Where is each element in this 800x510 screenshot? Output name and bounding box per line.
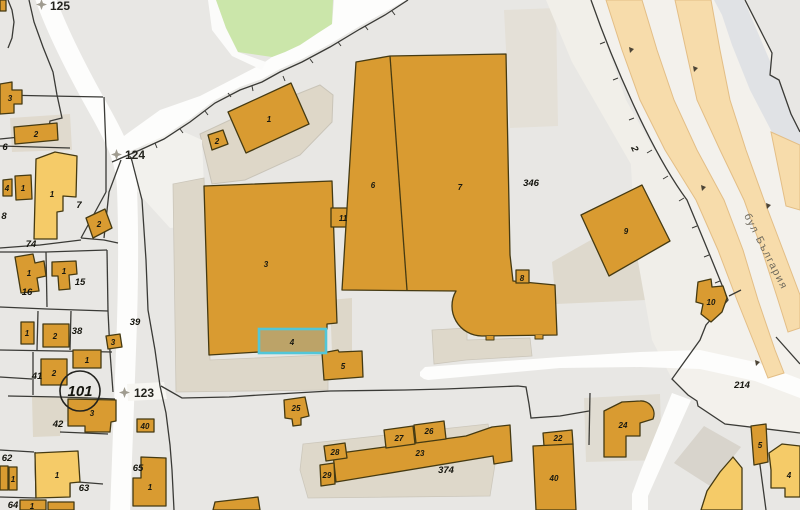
svg-text:4: 4 xyxy=(289,338,295,347)
svg-text:2: 2 xyxy=(52,332,58,341)
svg-text:1: 1 xyxy=(55,471,60,480)
svg-text:125: 125 xyxy=(50,0,70,13)
svg-text:27: 27 xyxy=(394,434,404,443)
svg-text:9: 9 xyxy=(624,227,629,236)
svg-text:40: 40 xyxy=(140,422,150,431)
svg-text:11: 11 xyxy=(339,214,348,223)
svg-text:3: 3 xyxy=(264,260,269,269)
svg-text:1: 1 xyxy=(85,356,90,365)
svg-text:15: 15 xyxy=(75,277,86,288)
svg-text:374: 374 xyxy=(438,465,455,476)
svg-text:2: 2 xyxy=(96,220,102,229)
svg-text:4: 4 xyxy=(4,184,10,193)
svg-text:1: 1 xyxy=(25,329,30,338)
svg-text:124: 124 xyxy=(125,148,145,162)
svg-text:1: 1 xyxy=(50,190,55,199)
svg-text:38: 38 xyxy=(72,326,83,337)
svg-text:5: 5 xyxy=(758,441,763,450)
svg-text:65: 65 xyxy=(133,463,144,474)
svg-text:74: 74 xyxy=(26,239,37,250)
svg-text:63: 63 xyxy=(79,483,90,494)
svg-text:4: 4 xyxy=(786,471,792,480)
svg-text:6: 6 xyxy=(2,142,8,153)
svg-text:346: 346 xyxy=(523,178,540,189)
svg-text:24: 24 xyxy=(618,421,628,430)
svg-text:64: 64 xyxy=(8,500,19,510)
svg-text:42: 42 xyxy=(52,419,64,430)
svg-text:1: 1 xyxy=(11,475,16,484)
svg-text:1: 1 xyxy=(148,483,153,492)
svg-text:62: 62 xyxy=(2,453,13,464)
svg-text:3: 3 xyxy=(90,409,95,418)
svg-text:2: 2 xyxy=(214,137,220,146)
svg-text:16: 16 xyxy=(22,287,33,298)
svg-text:3: 3 xyxy=(8,94,13,103)
svg-text:123: 123 xyxy=(134,386,154,400)
svg-text:1: 1 xyxy=(27,269,32,278)
svg-text:8: 8 xyxy=(520,274,525,283)
svg-text:40: 40 xyxy=(549,474,559,483)
svg-text:1: 1 xyxy=(267,115,272,124)
svg-text:23: 23 xyxy=(415,449,425,458)
svg-text:28: 28 xyxy=(330,448,340,457)
svg-text:25: 25 xyxy=(291,404,301,413)
svg-text:101: 101 xyxy=(67,383,92,400)
svg-text:8: 8 xyxy=(1,211,7,222)
svg-text:29: 29 xyxy=(322,471,332,480)
svg-text:1: 1 xyxy=(30,502,35,510)
svg-text:1: 1 xyxy=(62,267,67,276)
svg-text:3: 3 xyxy=(111,338,116,347)
svg-text:7: 7 xyxy=(76,200,82,211)
svg-text:41: 41 xyxy=(31,371,43,382)
svg-text:39: 39 xyxy=(130,317,141,328)
svg-text:6: 6 xyxy=(371,181,376,190)
svg-text:2: 2 xyxy=(51,369,57,378)
svg-text:1: 1 xyxy=(21,184,26,193)
svg-text:10: 10 xyxy=(707,298,716,307)
svg-text:2: 2 xyxy=(33,130,39,139)
svg-text:7: 7 xyxy=(458,183,463,192)
svg-text:214: 214 xyxy=(733,380,751,391)
svg-text:26: 26 xyxy=(424,427,434,436)
svg-text:5: 5 xyxy=(341,362,346,371)
svg-text:22: 22 xyxy=(553,434,563,443)
